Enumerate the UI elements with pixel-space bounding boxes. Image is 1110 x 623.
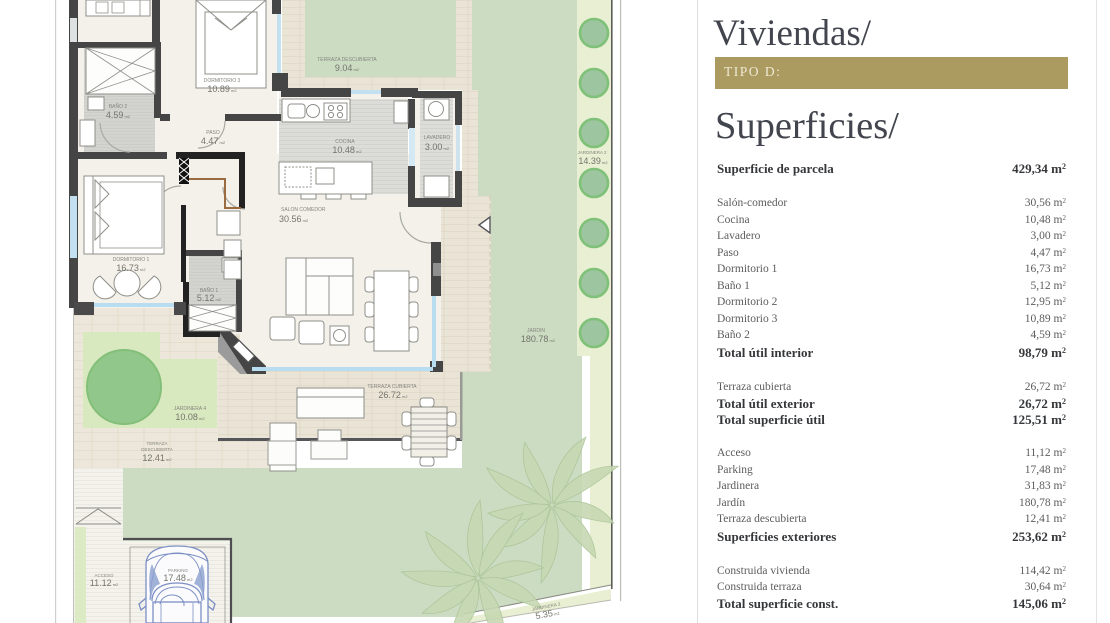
svg-text:LAVADERO: LAVADERO	[424, 135, 451, 141]
svg-text:DESCUBIERTA: DESCUBIERTA	[141, 447, 173, 452]
svg-text:TERRAZA: TERRAZA	[146, 441, 167, 446]
svg-text:JARDINERA 2: JARDINERA 2	[577, 150, 607, 155]
svg-text:BAÑO 2: BAÑO 2	[109, 103, 128, 110]
svg-text:SALON COMEDOR: SALON COMEDOR	[281, 207, 326, 213]
